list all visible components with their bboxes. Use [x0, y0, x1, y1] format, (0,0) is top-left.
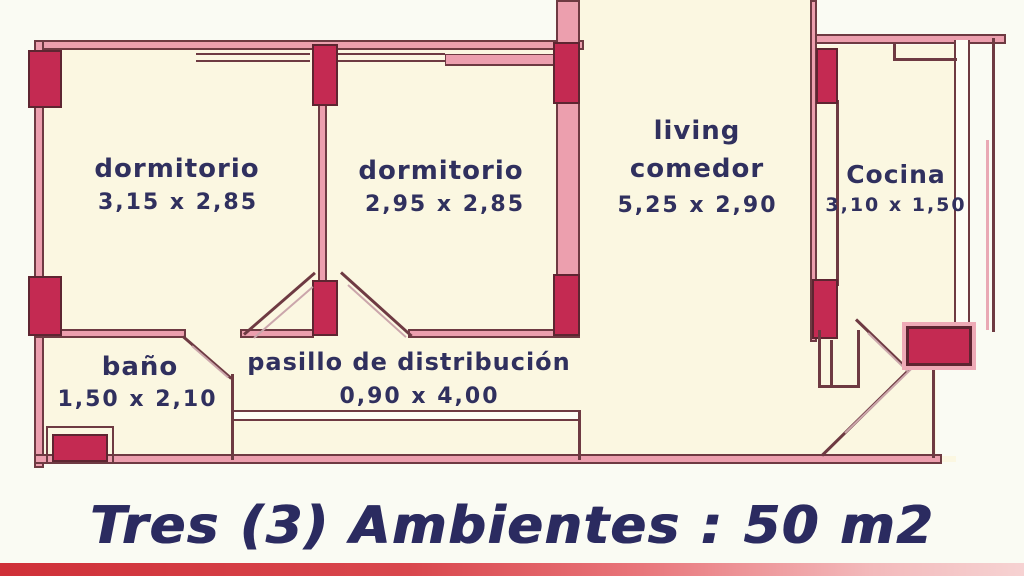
bottom-banner: [0, 563, 1024, 576]
floor-plan: dormitorio 3,15 x 2,85 dormitorio 2,95 x…: [0, 0, 1024, 576]
dims-bathroom: 1,50 x 2,10: [55, 388, 220, 411]
entry-closet-outline: [818, 330, 860, 388]
label-living-line2: comedor: [607, 156, 787, 183]
column-living-top-left: [553, 42, 580, 104]
bathroom-fixture: [52, 434, 108, 462]
outside-area-cover: [936, 368, 1006, 456]
wall-bedroom1-bottom: [240, 329, 314, 338]
wall-bathroom-right: [231, 374, 234, 460]
entry-door-leaf: [906, 326, 972, 366]
window-band-bedroom2: [445, 54, 558, 66]
dims-bedroom2: 2,95 x 2,85: [340, 193, 550, 216]
dims-hallway: 0,90 x 4,00: [332, 385, 507, 408]
wall-hallway-bottom: [233, 410, 580, 421]
wall-bedroom2-bottom: [408, 329, 558, 338]
wall-kitchen-outer-line: [992, 38, 995, 332]
label-living-line1: living: [607, 118, 787, 145]
entry-closet-inner-line: [830, 340, 833, 386]
wall-living-lower-left: [578, 410, 581, 460]
label-hallway: pasillo de distribución: [240, 350, 578, 375]
label-bedroom1: dormitorio: [72, 156, 282, 183]
label-kitchen: Cocina: [824, 162, 968, 188]
balcony-rail-line: [986, 140, 989, 330]
window-bedroom1: [196, 53, 310, 62]
footer-title: Tres (3) Ambientes : 50 m2: [0, 496, 1024, 556]
dims-kitchen: 3,10 x 1,50: [822, 196, 970, 216]
kitchen-notch-line-v: [893, 44, 896, 61]
room-fill-living-extension: [566, 0, 812, 48]
wall-kitchen-left-line: [836, 100, 839, 286]
label-bathroom: baño: [78, 354, 202, 381]
wall-top-kitchen: [810, 34, 1006, 44]
wall-top-bedrooms: [34, 40, 584, 50]
dims-living: 5,25 x 2,90: [605, 194, 790, 217]
column-bedrooms-bottom: [312, 280, 338, 336]
wall-entry-right: [932, 364, 935, 458]
column-top-left: [28, 50, 62, 108]
column-kitchen-top: [816, 48, 838, 104]
wall-bottom-outer: [34, 454, 942, 464]
kitchen-notch-line-h: [893, 58, 957, 61]
column-left-middle: [28, 276, 62, 336]
label-bedroom2: dormitorio: [336, 158, 546, 185]
column-bedrooms-top: [312, 44, 338, 106]
window-bedroom2: [337, 53, 445, 62]
column-living-bottom-left: [553, 274, 580, 336]
dims-bedroom1: 3,15 x 2,85: [73, 191, 283, 214]
